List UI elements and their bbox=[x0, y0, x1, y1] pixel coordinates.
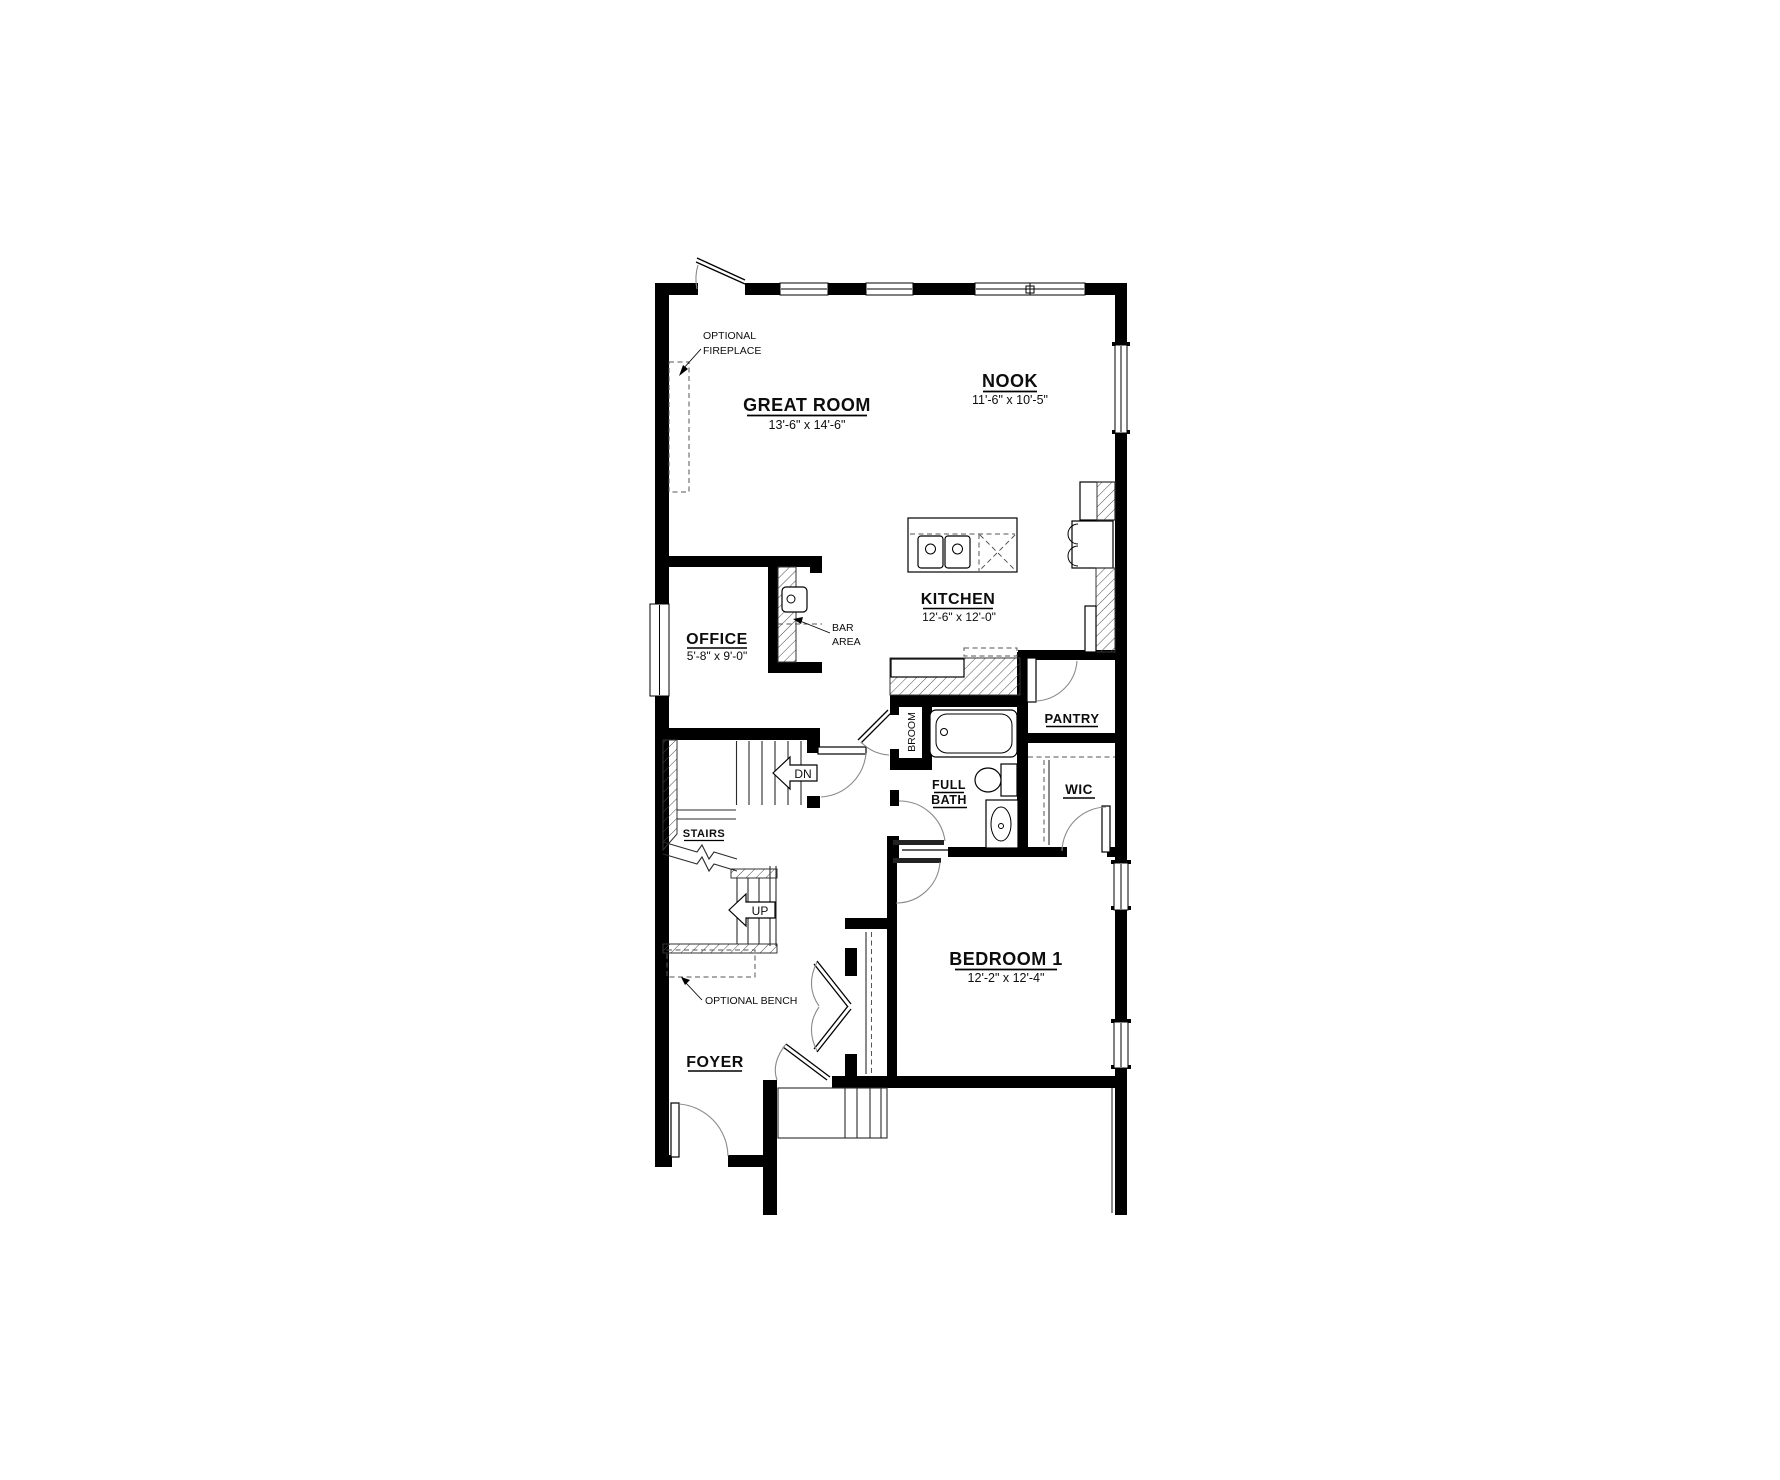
optional-bench-label: OPTIONAL BENCH bbox=[705, 995, 797, 1007]
full-bath-label-line1: FULL bbox=[932, 778, 966, 792]
closet-stub bbox=[845, 1054, 857, 1078]
refrigerator bbox=[1068, 521, 1113, 568]
nook-side-window bbox=[1112, 342, 1130, 434]
bar-area-line2: AREA bbox=[832, 636, 861, 648]
porch-west-wall bbox=[763, 1080, 777, 1215]
optional-elements bbox=[667, 362, 755, 977]
bedroom-window bbox=[1111, 1019, 1131, 1069]
bedroom-window bbox=[1111, 860, 1131, 910]
office-north-wall-cap bbox=[810, 556, 822, 573]
foyer-label: FOYER bbox=[686, 1054, 744, 1071]
bedroom-1-dimensions: 12'-2" x 12'-4" bbox=[968, 971, 1045, 985]
kitchen-island bbox=[908, 518, 1017, 572]
office-north-wall bbox=[655, 556, 822, 567]
stairs-north-wall bbox=[663, 728, 820, 740]
bedroom-west-wall bbox=[887, 836, 897, 1078]
office-east-wall bbox=[768, 567, 778, 673]
up-arrow-label: UP bbox=[752, 904, 769, 918]
office-dimensions: 5'-8" x 9'-0" bbox=[687, 649, 747, 663]
stair-half-wall bbox=[663, 944, 777, 953]
great-room-label: GREAT ROOM bbox=[743, 395, 871, 415]
bar-area-line1: BAR bbox=[832, 622, 854, 634]
left-wall-seg bbox=[655, 283, 669, 604]
bedroom-1-label: BEDROOM 1 bbox=[949, 949, 1063, 969]
right-wall-seg bbox=[1115, 1068, 1127, 1215]
closet-north-wall bbox=[845, 918, 897, 929]
top-wall-seg bbox=[745, 283, 780, 295]
nook-double-window bbox=[975, 283, 1085, 295]
pantry-door bbox=[1027, 658, 1077, 702]
right-wall-seg bbox=[1115, 910, 1127, 1022]
vanity-sink bbox=[986, 800, 1018, 848]
bathtub bbox=[930, 710, 1017, 757]
kitchen-south-counter bbox=[890, 648, 1020, 695]
foyer-steps-door bbox=[775, 1044, 830, 1080]
patio-door bbox=[696, 258, 745, 289]
office-window bbox=[650, 604, 669, 696]
top-wall-seg bbox=[913, 283, 975, 295]
great-room-window bbox=[866, 283, 913, 295]
kitchen-label: KITCHEN bbox=[921, 591, 996, 608]
optional-fireplace-outline bbox=[669, 362, 689, 492]
great-room-dimensions: 13'-6" x 14'-6" bbox=[769, 418, 846, 432]
pantry-label: PANTRY bbox=[1045, 711, 1100, 726]
pantry-wic-wall bbox=[1023, 733, 1127, 743]
right-wall-seg bbox=[1115, 283, 1127, 345]
broom-west-wall bbox=[890, 707, 899, 715]
floor-plan-drawing: GREAT ROOM 13'-6" x 14'-6" NOOK 11'-6" x… bbox=[0, 0, 1780, 1480]
kitchen-dimensions: 12'-6" x 12'-0" bbox=[922, 610, 996, 624]
optional-fireplace-line2: FIREPLACE bbox=[703, 345, 761, 357]
right-wall-seg bbox=[1115, 433, 1127, 863]
nook-dimensions: 11'-6" x 10'-5" bbox=[972, 393, 1048, 407]
broom-label: BROOM bbox=[906, 712, 918, 752]
nook-label: NOOK bbox=[982, 371, 1038, 391]
toilet bbox=[975, 764, 1017, 796]
foyer-closet-shelving bbox=[866, 932, 872, 1074]
front-door bbox=[671, 1103, 728, 1157]
stair-landing-lines bbox=[677, 810, 736, 819]
bedroom-south-wall bbox=[832, 1076, 1127, 1088]
bar-south-wall bbox=[768, 662, 822, 673]
bedroom-door-header bbox=[893, 840, 944, 845]
great-room-window bbox=[780, 283, 828, 295]
wic-door bbox=[1062, 806, 1110, 852]
kitchen-counter-south-wall bbox=[890, 695, 1023, 707]
stair-break-line bbox=[663, 842, 737, 871]
kitchen-fixtures bbox=[778, 482, 1115, 695]
bedroom-door-header bbox=[893, 858, 941, 863]
entry-steps bbox=[778, 1088, 1112, 1213]
upper-cabinet-dashed bbox=[964, 648, 1017, 656]
bedroom-door bbox=[896, 862, 940, 903]
floor-plan-page: GREAT ROOM 13'-6" x 14'-6" NOOK 11'-6" x… bbox=[0, 0, 1780, 1480]
wic-label: WIC bbox=[1065, 782, 1093, 797]
closet-stub bbox=[845, 948, 857, 976]
optional-bench-outline bbox=[667, 950, 755, 977]
bath-west-stub bbox=[890, 790, 899, 806]
full-bath-label-line2: BATH bbox=[931, 793, 967, 807]
down-arrow-label: DN bbox=[794, 767, 811, 781]
basement-door bbox=[818, 747, 866, 797]
basement-door-stub bbox=[807, 796, 820, 808]
top-wall-seg bbox=[828, 283, 866, 295]
office-label: OFFICE bbox=[686, 631, 748, 648]
range bbox=[891, 659, 964, 677]
foyer-south-wall-seg bbox=[655, 1155, 672, 1167]
bench-leader bbox=[681, 977, 702, 1000]
bar-counter bbox=[778, 567, 822, 662]
optional-fireplace-line1: OPTIONAL bbox=[703, 330, 756, 342]
stairs-label: STAIRS bbox=[683, 828, 726, 840]
bar-area-leader bbox=[793, 617, 830, 633]
broom-south-wall bbox=[890, 758, 932, 770]
stair-half-wall bbox=[663, 740, 677, 850]
